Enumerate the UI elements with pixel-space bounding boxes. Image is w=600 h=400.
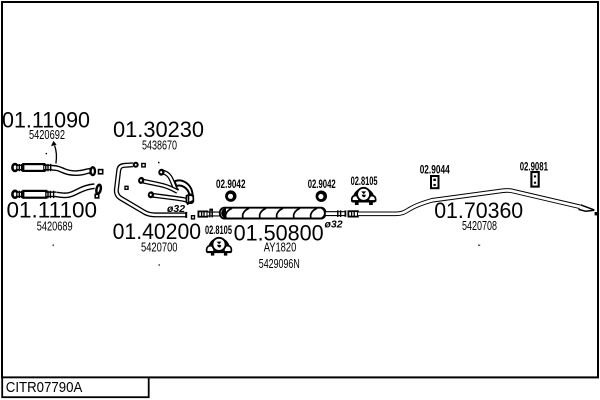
svg-text:5429096N: 5429096N xyxy=(259,257,300,271)
svg-text:ø32: ø32 xyxy=(325,218,343,230)
svg-text:AY1820: AY1820 xyxy=(264,241,297,255)
svg-text:5438670: 5438670 xyxy=(142,138,177,152)
svg-text:5420692: 5420692 xyxy=(29,128,65,142)
svg-text:ø32: ø32 xyxy=(167,203,185,215)
svg-text:02.9042: 02.9042 xyxy=(216,177,246,191)
svg-text:02.9042: 02.9042 xyxy=(308,177,336,191)
svg-text:02.8105: 02.8105 xyxy=(205,223,232,237)
svg-text:5420700: 5420700 xyxy=(141,241,178,255)
svg-text:02.9044: 02.9044 xyxy=(420,163,450,177)
svg-text:5420708: 5420708 xyxy=(462,219,497,233)
svg-text:02.8105: 02.8105 xyxy=(351,174,378,188)
svg-text:5420689: 5420689 xyxy=(37,219,73,233)
svg-text:CITR07790A: CITR07790A xyxy=(6,380,83,396)
